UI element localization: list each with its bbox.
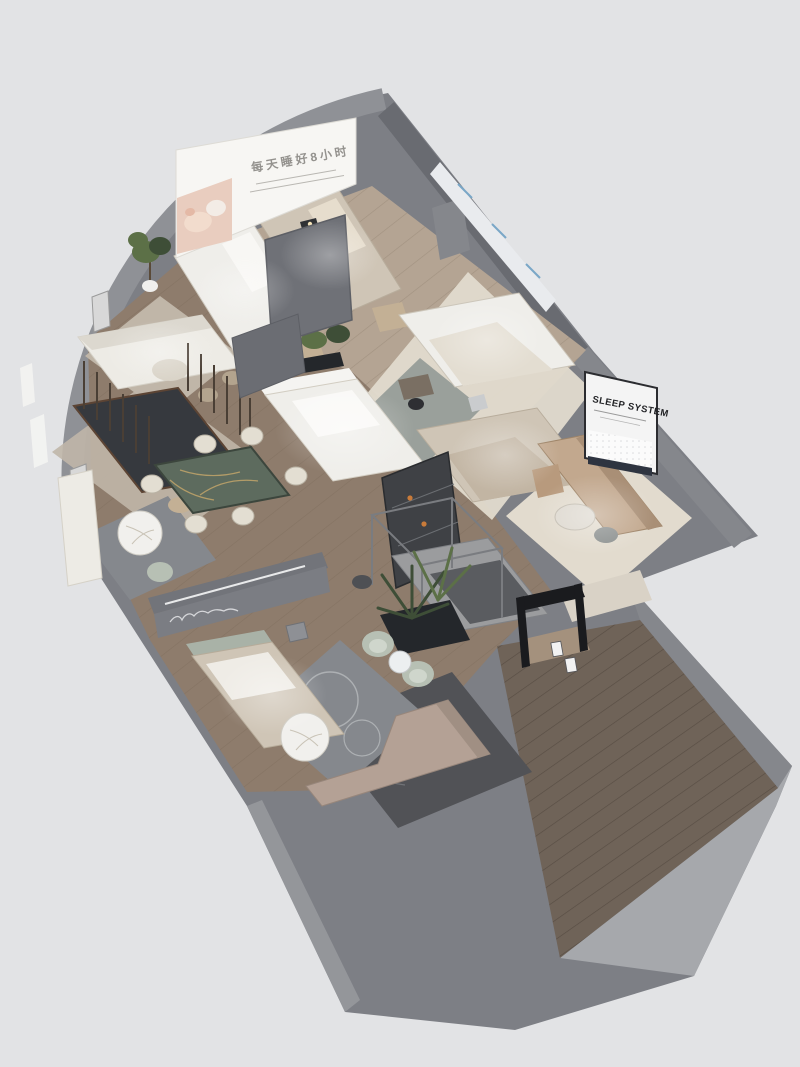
display-frame-1 bbox=[551, 641, 563, 657]
dark-pouf bbox=[352, 575, 372, 589]
swivel-chair-2-seat bbox=[409, 669, 427, 683]
display-frame-2 bbox=[565, 657, 577, 673]
sage-chair bbox=[147, 562, 173, 582]
side-table-round bbox=[389, 651, 411, 673]
cube-nightstand bbox=[286, 622, 308, 642]
sleep-system-sign: SLEEP SYSTEM bbox=[585, 372, 670, 476]
swivel-chair-1-seat bbox=[369, 639, 387, 653]
cabinet-item-1 bbox=[407, 495, 412, 500]
desk-chair bbox=[408, 398, 424, 410]
round-marble-table bbox=[118, 511, 162, 555]
wall-frame-1 bbox=[92, 291, 110, 332]
showroom-svg: SLEEP SYSTEM bbox=[0, 0, 800, 1067]
showroom-render: SLEEP SYSTEM bbox=[0, 0, 800, 1067]
white-pot bbox=[142, 280, 158, 292]
cabinet-item-2 bbox=[421, 521, 426, 526]
